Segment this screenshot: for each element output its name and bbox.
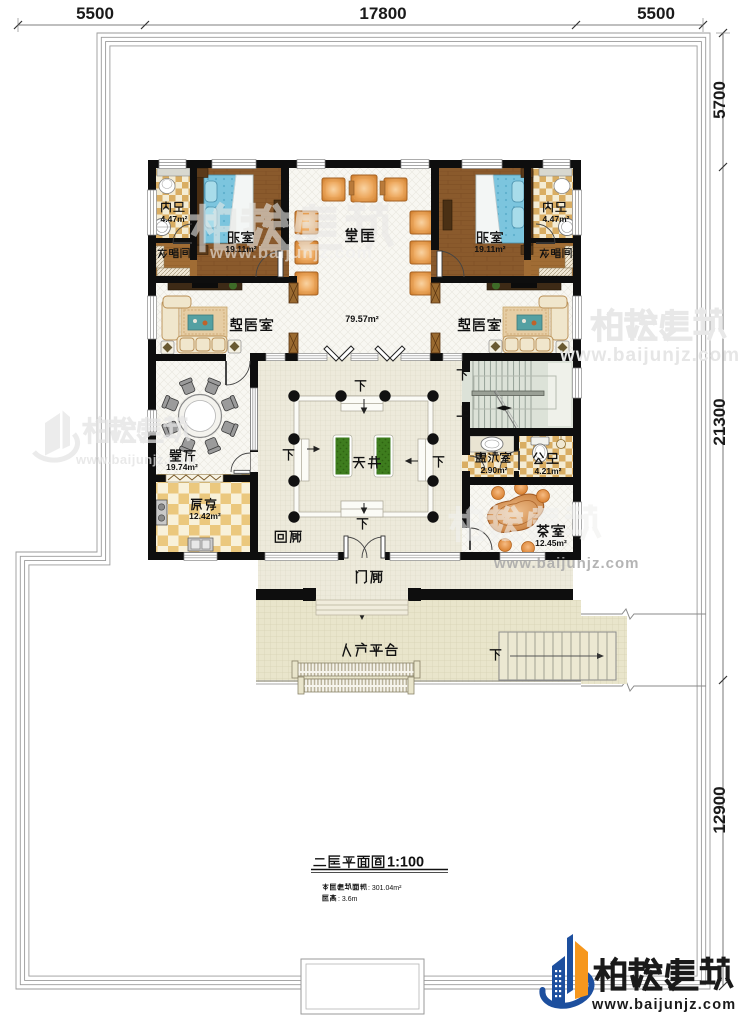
svg-text:: 3.6m: : 3.6m	[338, 896, 358, 903]
svg-text:12.45m²: 12.45m²	[535, 538, 567, 548]
svg-text:5700: 5700	[710, 81, 729, 119]
svg-text:19.74m²: 19.74m²	[166, 462, 198, 472]
svg-text:17800: 17800	[359, 4, 406, 23]
svg-text:12.42m²: 12.42m²	[189, 511, 221, 521]
svg-text:79.57m²: 79.57m²	[345, 314, 379, 324]
svg-text:19.11m²: 19.11m²	[474, 244, 505, 254]
svg-text:1:100: 1:100	[387, 855, 424, 871]
svg-text:4.21m²: 4.21m²	[535, 466, 562, 476]
svg-text:4.47m²: 4.47m²	[161, 214, 188, 224]
svg-text:12900: 12900	[710, 786, 729, 833]
svg-text:19.11m²: 19.11m²	[225, 244, 256, 254]
svg-text:4.47m²: 4.47m²	[543, 214, 570, 224]
svg-text:5500: 5500	[637, 4, 675, 23]
svg-text:: 301.04m²: : 301.04m²	[368, 885, 402, 892]
svg-text:www.baijunjz.com: www.baijunjz.com	[493, 555, 639, 572]
svg-text:21300: 21300	[710, 398, 729, 445]
svg-text:5500: 5500	[76, 4, 114, 23]
svg-text:2.90m²: 2.90m²	[481, 465, 508, 475]
svg-text:www.baijunjz.com: www.baijunjz.com	[559, 345, 740, 366]
svg-text:www.baijunjz.com: www.baijunjz.com	[591, 997, 736, 1013]
